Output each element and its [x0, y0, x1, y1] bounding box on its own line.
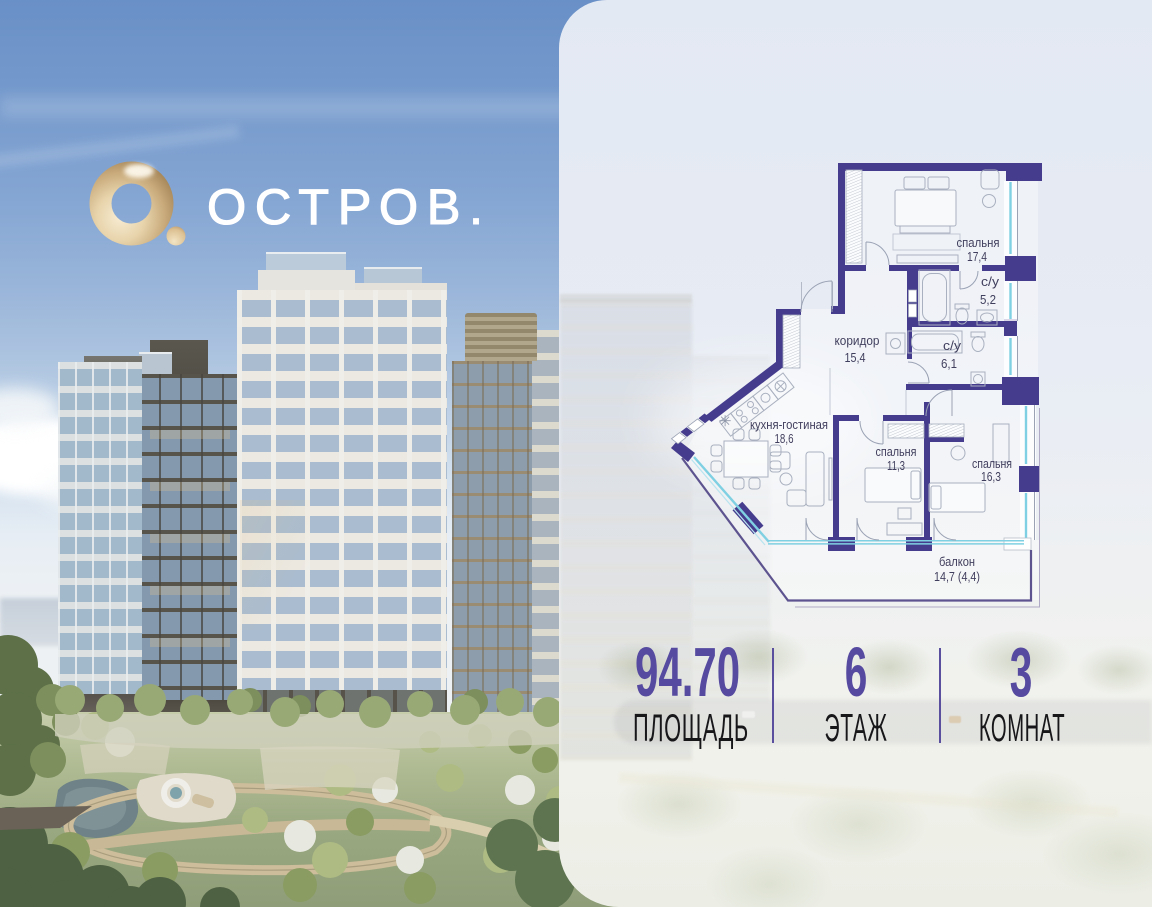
svg-text:кухня-гостиная: кухня-гостиная	[750, 418, 828, 432]
svg-text:14,7 (4,4): 14,7 (4,4)	[934, 569, 980, 584]
svg-text:с/у: с/у	[943, 339, 962, 353]
svg-text:6,1: 6,1	[941, 356, 957, 371]
svg-text:коридор: коридор	[835, 334, 880, 348]
svg-text:5,2: 5,2	[980, 292, 996, 307]
svg-text:16,3: 16,3	[981, 469, 1001, 484]
svg-text:15,4: 15,4	[845, 350, 866, 365]
svg-text:спальня: спальня	[957, 236, 1000, 250]
svg-text:ОСТРОВ.: ОСТРОВ.	[207, 178, 492, 235]
svg-text:с/у: с/у	[981, 275, 1000, 289]
svg-text:17,4: 17,4	[967, 249, 987, 264]
svg-text:11,3: 11,3	[887, 458, 905, 473]
svg-text:18,6: 18,6	[775, 431, 794, 446]
svg-text:балкон: балкон	[939, 555, 975, 569]
svg-text:спальня: спальня	[876, 445, 917, 459]
